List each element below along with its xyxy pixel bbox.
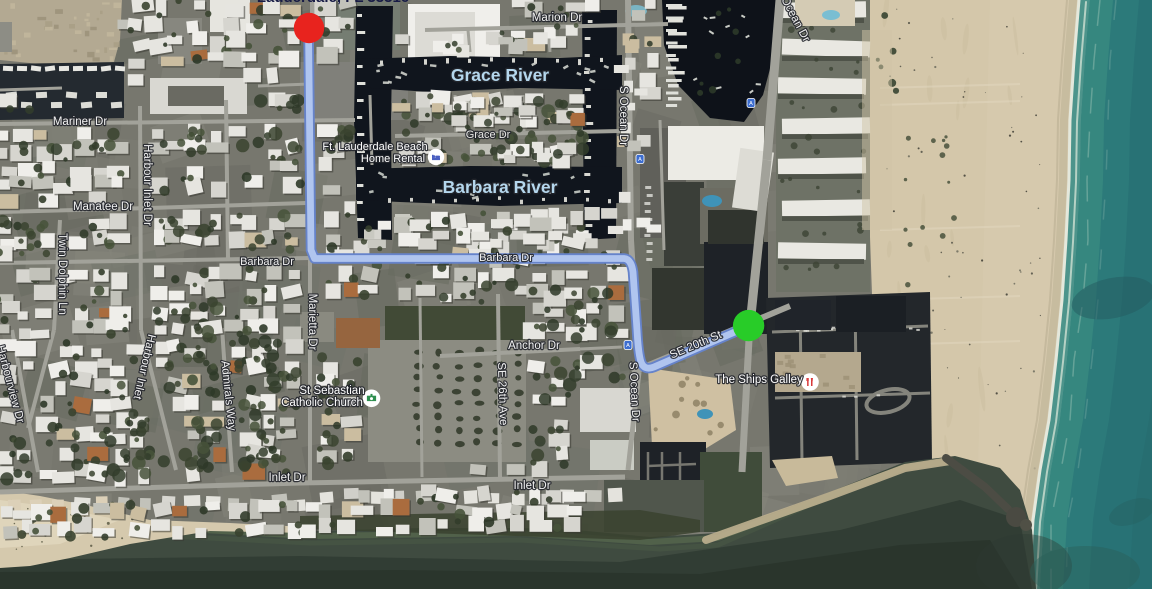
svg-text:St Sebastian: St Sebastian — [299, 385, 364, 397]
svg-text:SE 26th Ave: SE 26th Ave — [495, 362, 509, 425]
svg-text:Inlet Dr: Inlet Dr — [268, 472, 305, 484]
svg-text:Grace River: Grace River — [451, 65, 549, 85]
svg-text:A: A — [626, 343, 630, 349]
svg-text:Manatee Dr: Manatee Dr — [73, 201, 133, 213]
svg-text:Barbara River: Barbara River — [443, 177, 558, 197]
svg-text:Catholic Church: Catholic Church — [281, 397, 363, 409]
svg-text:Twin Dolphin Ln: Twin Dolphin Ln — [56, 233, 68, 315]
svg-text:A: A — [749, 101, 753, 107]
svg-text:Inlet Dr: Inlet Dr — [513, 480, 550, 492]
svg-text:Home Rental: Home Rental — [361, 153, 425, 165]
svg-text:The Ships Galley: The Ships Galley — [715, 374, 803, 386]
svg-text:Barbara Dr: Barbara Dr — [479, 252, 533, 264]
svg-text:Marion Dr: Marion Dr — [532, 12, 583, 24]
svg-text:Marietta Dr: Marietta Dr — [306, 294, 318, 351]
svg-text:Grace Dr: Grace Dr — [466, 129, 511, 141]
svg-text:A: A — [638, 157, 642, 163]
svg-text:Barbara Dr: Barbara Dr — [240, 256, 294, 268]
svg-text:Harbour Inlet Dr: Harbour Inlet Dr — [141, 144, 153, 226]
svg-text:Ft. Lauderdale Beach: Ft. Lauderdale Beach — [322, 141, 427, 153]
svg-text:Mariner Dr: Mariner Dr — [53, 116, 107, 128]
svg-text:Lauderdale, FL 33316: Lauderdale, FL 33316 — [257, 0, 409, 6]
svg-text:Anchor Dr: Anchor Dr — [508, 340, 560, 352]
svg-text:S Ocean Dr: S Ocean Dr — [617, 86, 629, 146]
